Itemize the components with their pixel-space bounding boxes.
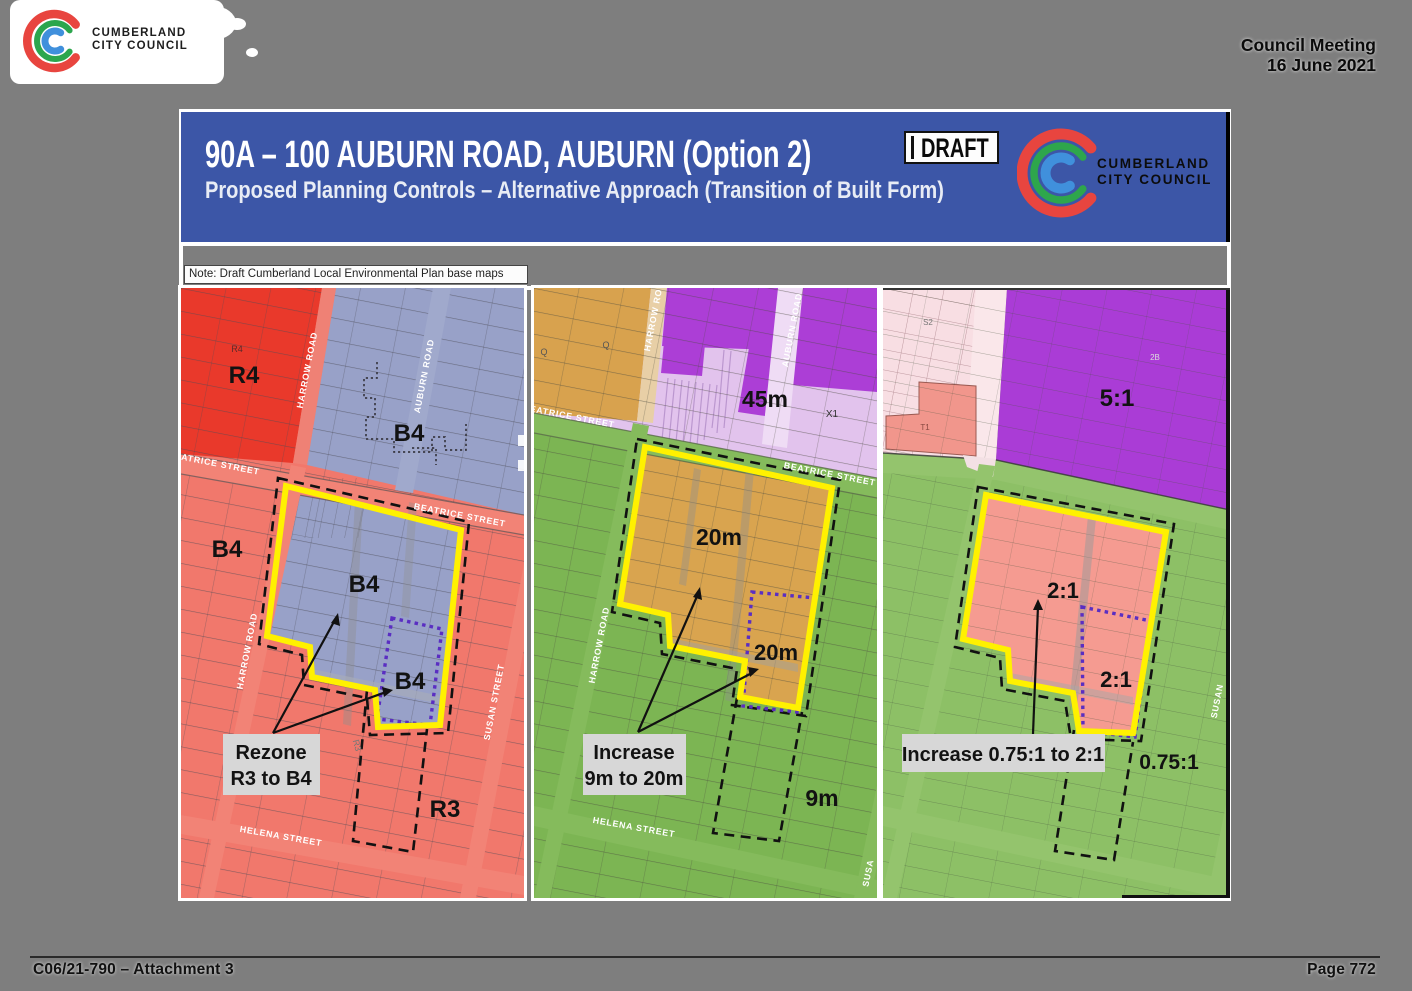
svg-text:Q: Q bbox=[540, 347, 547, 357]
svg-text:45m: 45m bbox=[742, 386, 788, 412]
svg-text:9m: 9m bbox=[805, 785, 838, 811]
svg-text:R3: R3 bbox=[430, 796, 461, 823]
svg-text:20m: 20m bbox=[754, 640, 798, 665]
svg-text:2B: 2B bbox=[1150, 353, 1160, 362]
svg-text:Rezone: Rezone bbox=[235, 742, 306, 764]
svg-text:B4: B4 bbox=[212, 536, 243, 563]
svg-text:9m to 20m: 9m to 20m bbox=[585, 768, 684, 790]
svg-text:Increase: Increase bbox=[593, 742, 674, 764]
svg-text:R3 to B4: R3 to B4 bbox=[230, 768, 312, 790]
svg-text:2:1: 2:1 bbox=[1100, 667, 1132, 692]
svg-text:T1: T1 bbox=[920, 423, 930, 432]
svg-text:R4: R4 bbox=[229, 362, 260, 389]
svg-text:5:1: 5:1 bbox=[1100, 385, 1135, 412]
svg-text:0.75:1: 0.75:1 bbox=[1139, 751, 1199, 774]
svg-text:2:1: 2:1 bbox=[1047, 578, 1079, 603]
svg-text:B4: B4 bbox=[395, 668, 426, 695]
svg-text:B4: B4 bbox=[394, 420, 425, 447]
svg-text:R4: R4 bbox=[231, 344, 243, 354]
svg-text:S2: S2 bbox=[923, 318, 933, 327]
svg-text:20m: 20m bbox=[696, 524, 742, 550]
svg-text:Increase 0.75:1 to 2:1: Increase 0.75:1 to 2:1 bbox=[902, 744, 1104, 766]
svg-text:X1: X1 bbox=[826, 409, 839, 420]
svg-text:B4: B4 bbox=[349, 571, 380, 598]
svg-text:Q: Q bbox=[602, 340, 609, 350]
